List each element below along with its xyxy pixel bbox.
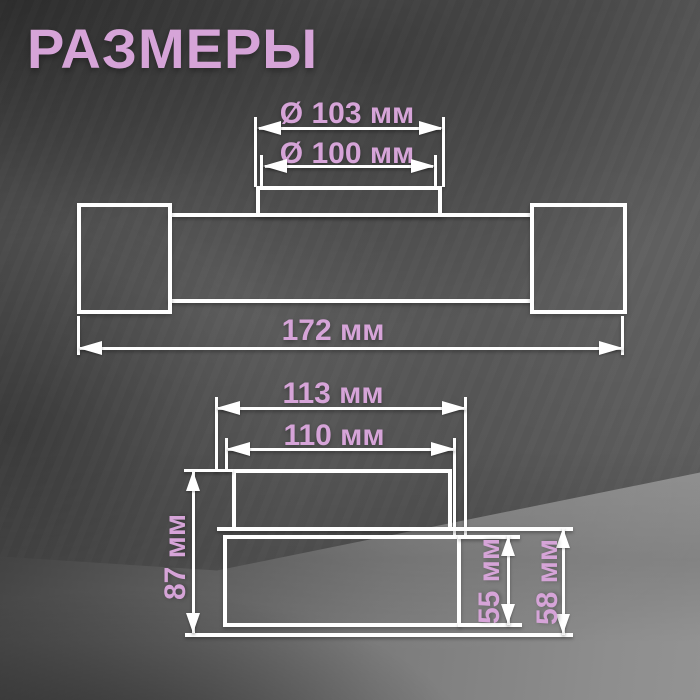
dim-line-113: [218, 407, 466, 410]
bar-bottom-edge: [168, 299, 534, 303]
bar-top-edge: [168, 213, 534, 217]
arrow-left-icon: [78, 341, 102, 355]
arrow-down-icon: [186, 613, 200, 633]
canopy-outline: [232, 469, 452, 527]
dim-label-87: 87 мм: [161, 514, 191, 600]
dim-line-172: [80, 347, 623, 350]
page-title: РАЗМЕРЫ: [27, 21, 318, 77]
arrow-left-icon: [257, 121, 281, 135]
dim-line-100: [265, 165, 433, 168]
base-bottom-line: [185, 633, 573, 637]
dim-line-87: [192, 471, 195, 633]
canopy-bottom-line: [217, 527, 573, 531]
arrow-left-icon: [216, 401, 240, 415]
arrow-up-icon: [186, 471, 200, 491]
arrow-right-icon: [419, 121, 443, 135]
dim-line-103: [259, 127, 441, 130]
arrow-left-icon: [226, 442, 250, 456]
extension-line-113-right: [464, 397, 467, 535]
dim-label-55: 55 мм: [475, 538, 505, 624]
arrow-right-icon: [442, 401, 466, 415]
dimensions-infographic: РАЗМЕРЫ Ø 103 мм Ø 100 мм 172 мм 113: [0, 0, 700, 700]
arrow-right-icon: [431, 442, 455, 456]
dim-label-diameter-103: Ø 103 мм: [280, 99, 414, 129]
dim-line-110: [228, 448, 455, 451]
body-outline: [223, 535, 461, 627]
arrow-right-icon: [411, 159, 435, 173]
dim-label-172: 172 мм: [282, 316, 385, 346]
dim-label-113: 113 мм: [282, 379, 383, 409]
arrow-right-icon: [599, 341, 623, 355]
arrow-left-icon: [263, 159, 287, 173]
dim-label-58: 58 мм: [533, 539, 563, 625]
left-endcap-outline: [77, 203, 172, 314]
dim-label-110: 110 мм: [283, 421, 384, 451]
right-endcap-outline: [530, 203, 627, 314]
